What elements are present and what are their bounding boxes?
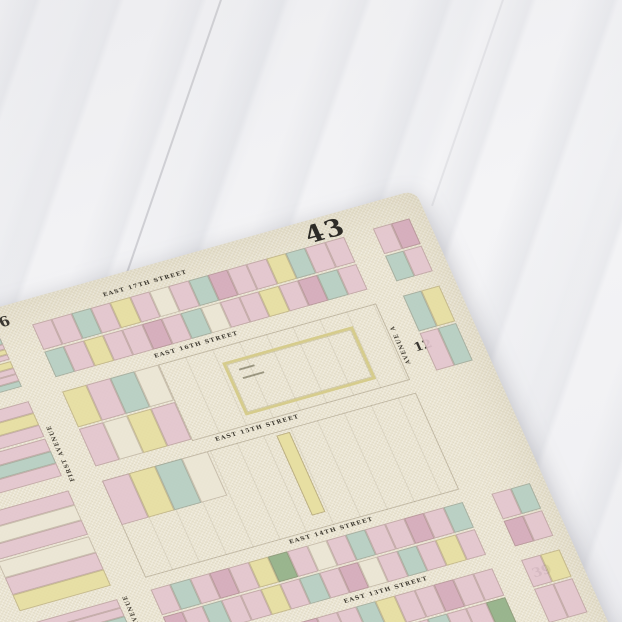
lot-annotation-mark bbox=[239, 364, 255, 370]
canvas-print-wrapper: 43 16 12 39 EAST 17TH STREETEAST 16TH ST… bbox=[0, 0, 622, 622]
city-block bbox=[420, 323, 473, 371]
map-canvas-print: 43 16 12 39 EAST 17TH STREETEAST 16TH ST… bbox=[0, 190, 622, 622]
city-block bbox=[0, 439, 62, 502]
lot-annotation-mark bbox=[243, 371, 265, 379]
street-map: EAST 17TH STREETEAST 16TH STREETEAST 15T… bbox=[0, 204, 622, 622]
photo-scene: 43 16 12 39 EAST 17TH STREETEAST 16TH ST… bbox=[0, 0, 622, 622]
